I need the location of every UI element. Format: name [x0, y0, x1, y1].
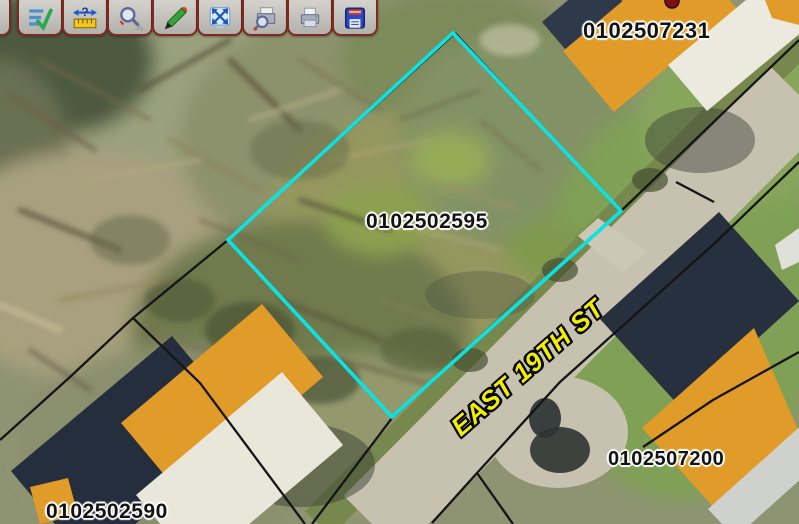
print-icon: [297, 5, 323, 31]
aerial-map[interactable]: [0, 0, 799, 524]
parcel-label: 0102502590: [46, 500, 168, 524]
measure-button[interactable]: ?: [62, 0, 108, 36]
svg-text:?: ?: [81, 5, 88, 19]
svg-text:xy: xy: [137, 23, 144, 31]
measure-icon: ?: [72, 5, 98, 31]
toolbar: ? xy: [0, 0, 420, 40]
parcel-label: 0102507231: [583, 18, 710, 44]
full-extent-icon: [207, 5, 233, 31]
save-button[interactable]: [332, 0, 378, 36]
zoom-button[interactable]: xy: [107, 0, 153, 36]
map-viewport[interactable]: 0102507231 0102502595 0102502590 0102507…: [0, 0, 799, 524]
select-results-icon: [27, 5, 53, 31]
parcel-label: 0102507200: [608, 448, 724, 471]
full-extent-button[interactable]: [197, 0, 243, 36]
print-preview-icon: [252, 5, 278, 31]
draw-icon: [162, 5, 188, 31]
print-button[interactable]: [287, 0, 333, 36]
select-results-button[interactable]: [17, 0, 63, 36]
print-preview-button[interactable]: [242, 0, 288, 36]
zoom-icon: xy: [117, 5, 143, 31]
draw-button[interactable]: [152, 0, 198, 36]
save-icon: [342, 5, 368, 31]
toolbar-button-partial[interactable]: [0, 0, 11, 36]
parcel-label-highlighted: 0102502595: [366, 210, 488, 234]
point-marker: [665, 0, 679, 8]
